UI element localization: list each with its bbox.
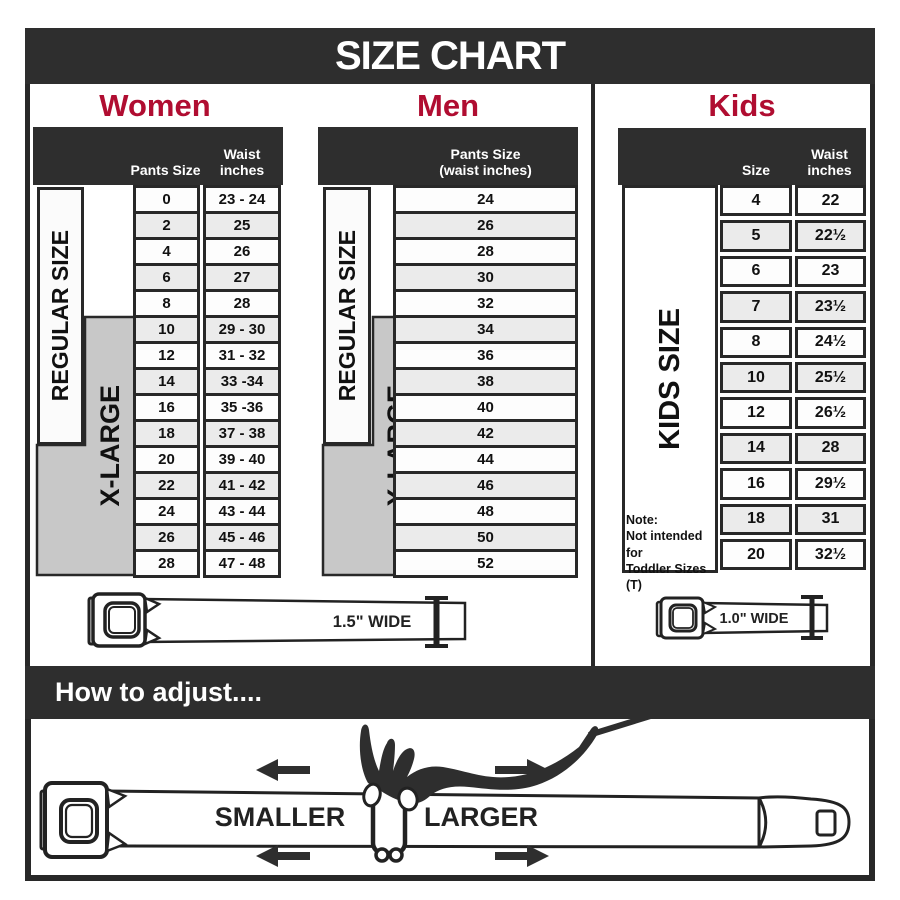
waist-inches-cell: 28 bbox=[795, 433, 866, 464]
size-cell: 16 bbox=[720, 468, 792, 499]
size-cell: 14 bbox=[720, 433, 792, 464]
pants-size-cell: 0 bbox=[133, 185, 200, 214]
table-row: 28 bbox=[393, 237, 578, 266]
larger-label: LARGER bbox=[424, 802, 538, 832]
waist-inches-cell: 23½ bbox=[795, 291, 866, 322]
waist-inches-cell: 22½ bbox=[795, 220, 866, 251]
pants-size-cell: 4 bbox=[133, 237, 200, 266]
men-size-table-panel: Pants Size (waist inches) REGULAR SIZE X… bbox=[318, 127, 578, 578]
table-row: 1226½ bbox=[720, 397, 866, 428]
table-row: 26 bbox=[393, 211, 578, 240]
pants-size-cell: 38 bbox=[393, 367, 578, 396]
men-table-body: 242628303234363840424446485052 bbox=[393, 185, 578, 578]
pants-size-cell: 30 bbox=[393, 263, 578, 292]
pants-size-cell: 10 bbox=[133, 315, 200, 344]
waist-inches-cell: 31 bbox=[795, 504, 866, 535]
page-title-bar: SIZE CHART bbox=[25, 28, 875, 84]
kids-size-label: KIDS SIZE bbox=[654, 308, 687, 450]
table-row: 46 bbox=[393, 471, 578, 500]
note-line: Note: bbox=[626, 512, 718, 528]
table-row: 36 bbox=[393, 341, 578, 370]
size-cell: 6 bbox=[720, 256, 792, 287]
table-row: 2645 - 46 bbox=[133, 523, 281, 552]
waist-inches-cell: 41 - 42 bbox=[203, 471, 281, 500]
table-row: 522½ bbox=[720, 220, 866, 251]
women-xlarge-label-box: X-LARGE bbox=[85, 317, 135, 575]
waist-inches-cell: 24½ bbox=[795, 327, 866, 358]
waist-inches-cell: 23 - 24 bbox=[203, 185, 281, 214]
pants-size-cell: 24 bbox=[393, 185, 578, 214]
how-to-adjust-bar: How to adjust.... bbox=[25, 666, 875, 719]
kids-section-label: Kids bbox=[627, 88, 857, 124]
table-row: 1433 -34 bbox=[133, 367, 281, 396]
size-cell: 10 bbox=[720, 362, 792, 393]
table-row: 40 bbox=[393, 393, 578, 422]
women-section-label: Women bbox=[40, 88, 270, 124]
pants-size-cell: 8 bbox=[133, 289, 200, 318]
table-row: 24 bbox=[393, 185, 578, 214]
pants-size-cell: 28 bbox=[393, 237, 578, 266]
kids-table-body: 422522½623723½824½1025½1226½14281629½183… bbox=[720, 185, 866, 574]
pants-size-cell: 18 bbox=[133, 419, 200, 448]
size-cell: 18 bbox=[720, 504, 792, 535]
how-to-adjust-label: How to adjust.... bbox=[55, 677, 262, 708]
adjust-diagram-frame: SMALLER LARGER bbox=[25, 719, 875, 881]
table-row: 723½ bbox=[720, 291, 866, 322]
waist-inches-cell: 43 - 44 bbox=[203, 497, 281, 526]
smaller-label: SMALLER bbox=[215, 802, 346, 832]
table-row: 1837 - 38 bbox=[133, 419, 281, 448]
note-line: Toddler Sizes (T) bbox=[626, 561, 718, 594]
pants-size-cell: 50 bbox=[393, 523, 578, 552]
size-cell: 5 bbox=[720, 220, 792, 251]
table-row: 225 bbox=[133, 211, 281, 240]
table-row: 30 bbox=[393, 263, 578, 292]
waist-inches-cell: 22 bbox=[795, 185, 866, 216]
women-xlarge-label: X-LARGE bbox=[95, 385, 126, 507]
header-label: inches bbox=[807, 162, 851, 178]
arrow-left-icon bbox=[256, 759, 310, 781]
waist-inches-cell: 28 bbox=[203, 289, 281, 318]
pants-size-cell: 22 bbox=[133, 471, 200, 500]
waist-inches-cell: 39 - 40 bbox=[203, 445, 281, 474]
table-row: 2032½ bbox=[720, 539, 866, 570]
pants-size-cell: 14 bbox=[133, 367, 200, 396]
pants-size-cell: 36 bbox=[393, 341, 578, 370]
kids-belt-illustration: 1.0" WIDE bbox=[655, 592, 835, 644]
women-table-body: 023 - 242254266278281029 - 301231 - 3214… bbox=[133, 185, 281, 578]
waist-inches-cell: 32½ bbox=[795, 539, 866, 570]
table-row: 1231 - 32 bbox=[133, 341, 281, 370]
table-row: 2847 - 48 bbox=[133, 549, 281, 578]
waist-inches-cell: 25 bbox=[203, 211, 281, 240]
size-cell: 7 bbox=[720, 291, 792, 322]
table-row: 2039 - 40 bbox=[133, 445, 281, 474]
table-row: 38 bbox=[393, 367, 578, 396]
size-cell: 8 bbox=[720, 327, 792, 358]
kids-note: Note: Not intended for Toddler Sizes (T) bbox=[626, 512, 718, 593]
table-row: 623 bbox=[720, 256, 866, 287]
women-regular-size-label: REGULAR SIZE bbox=[47, 230, 74, 401]
adult-belt-illustration: 1.5" WIDE bbox=[85, 590, 475, 654]
size-cell: 4 bbox=[720, 185, 792, 216]
arrow-left-icon bbox=[256, 845, 310, 867]
size-cell: 12 bbox=[720, 397, 792, 428]
waist-inches-cell: 33 -34 bbox=[203, 367, 281, 396]
waist-inches-cell: 31 - 32 bbox=[203, 341, 281, 370]
table-row: 48 bbox=[393, 497, 578, 526]
size-cell: 20 bbox=[720, 539, 792, 570]
left-frame-border bbox=[25, 84, 30, 666]
table-row: 828 bbox=[133, 289, 281, 318]
table-row: 1029 - 30 bbox=[133, 315, 281, 344]
pants-size-cell: 2 bbox=[133, 211, 200, 240]
pants-size-cell: 32 bbox=[393, 289, 578, 318]
waist-inches-cell: 29½ bbox=[795, 468, 866, 499]
waist-inches-cell: 26 bbox=[203, 237, 281, 266]
waist-inches-cell: 25½ bbox=[795, 362, 866, 393]
table-row: 1025½ bbox=[720, 362, 866, 393]
pants-size-cell: 46 bbox=[393, 471, 578, 500]
waist-inches-cell: 27 bbox=[203, 263, 281, 292]
table-row: 1428 bbox=[720, 433, 866, 464]
pants-size-cell: 52 bbox=[393, 549, 578, 578]
men-section-label: Men bbox=[333, 88, 563, 124]
table-row: 1635 -36 bbox=[133, 393, 281, 422]
waist-inches-cell: 29 - 30 bbox=[203, 315, 281, 344]
right-frame-border bbox=[870, 84, 875, 666]
pants-size-cell: 44 bbox=[393, 445, 578, 474]
table-row: 50 bbox=[393, 523, 578, 552]
table-row: 023 - 24 bbox=[133, 185, 281, 214]
waist-inches-cell: 37 - 38 bbox=[203, 419, 281, 448]
table-row: 2241 - 42 bbox=[133, 471, 281, 500]
page-title: SIZE CHART bbox=[335, 34, 565, 79]
waist-inches-cell: 35 -36 bbox=[203, 393, 281, 422]
note-line: Not intended for bbox=[626, 528, 718, 561]
kids-size-table-panel: Size Waist inches KIDS SIZE Note: Not in… bbox=[618, 128, 866, 573]
waist-inches-cell: 47 - 48 bbox=[203, 549, 281, 578]
table-row: 42 bbox=[393, 419, 578, 448]
men-regular-size-box: REGULAR SIZE bbox=[323, 187, 371, 445]
kids-belt-width-label: 1.0" WIDE bbox=[720, 611, 789, 627]
section-divider bbox=[591, 84, 595, 666]
table-row: 824½ bbox=[720, 327, 866, 358]
waist-inches-cell: 23 bbox=[795, 256, 866, 287]
pants-size-cell: 12 bbox=[133, 341, 200, 370]
pants-size-cell: 42 bbox=[393, 419, 578, 448]
pants-size-cell: 6 bbox=[133, 263, 200, 292]
size-chart-infographic: SIZE CHART Women Men Kids Pants Size Wai… bbox=[0, 0, 900, 900]
pants-size-cell: 40 bbox=[393, 393, 578, 422]
waist-inches-cell: 26½ bbox=[795, 397, 866, 428]
table-row: 34 bbox=[393, 315, 578, 344]
table-row: 1629½ bbox=[720, 468, 866, 499]
adult-belt-width-label: 1.5" WIDE bbox=[333, 613, 411, 631]
table-row: 1831 bbox=[720, 504, 866, 535]
waist-inches-cell: 45 - 46 bbox=[203, 523, 281, 552]
pants-size-cell: 26 bbox=[393, 211, 578, 240]
pants-size-cell: 48 bbox=[393, 497, 578, 526]
kids-col-header-waist: Waist inches bbox=[793, 128, 866, 185]
kids-col-header-size: Size bbox=[720, 128, 792, 185]
table-row: 44 bbox=[393, 445, 578, 474]
table-row: 52 bbox=[393, 549, 578, 578]
pants-size-cell: 16 bbox=[133, 393, 200, 422]
arrow-right-icon bbox=[495, 845, 549, 867]
women-regular-size-box: REGULAR SIZE bbox=[37, 187, 84, 445]
adjust-diagram: SMALLER LARGER bbox=[31, 719, 869, 872]
women-size-table-panel: Pants Size Waist inches REGULAR SIZE X-L… bbox=[33, 127, 283, 578]
kids-table-header: Size Waist inches bbox=[618, 128, 866, 185]
table-row: 2443 - 44 bbox=[133, 497, 281, 526]
header-label: Waist bbox=[811, 146, 848, 162]
table-row: 422 bbox=[720, 185, 866, 216]
men-regular-size-label: REGULAR SIZE bbox=[334, 230, 361, 401]
pants-size-cell: 34 bbox=[393, 315, 578, 344]
pants-size-cell: 24 bbox=[133, 497, 200, 526]
table-row: 627 bbox=[133, 263, 281, 292]
table-row: 32 bbox=[393, 289, 578, 318]
pants-size-cell: 20 bbox=[133, 445, 200, 474]
header-label: Size bbox=[742, 162, 770, 178]
pants-size-cell: 28 bbox=[133, 549, 200, 578]
pants-size-cell: 26 bbox=[133, 523, 200, 552]
table-row: 426 bbox=[133, 237, 281, 266]
